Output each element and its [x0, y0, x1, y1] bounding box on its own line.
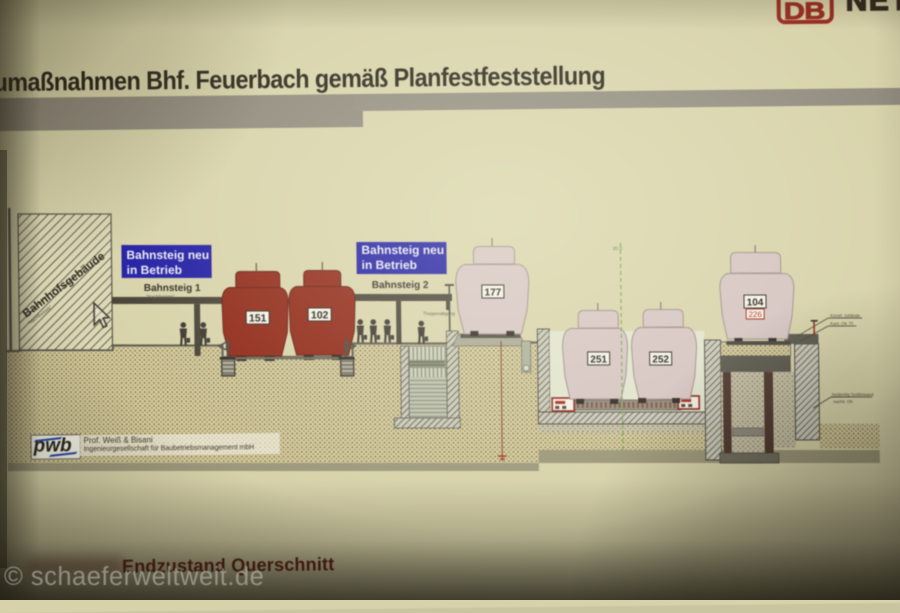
svg-text:177: 177 [485, 288, 502, 299]
svg-text:nachtr. OK: nachtr. OK [833, 399, 853, 404]
svg-text:in Betrieb: in Betrieb [362, 258, 418, 272]
svg-text:Treppenabgang: Treppenabgang [423, 311, 455, 316]
svg-text:151: 151 [249, 313, 267, 325]
svg-text:104: 104 [747, 298, 764, 309]
svg-text:Kant. OK 75: Kant. OK 75 [830, 321, 854, 326]
svg-text:Bahnsteig 1: Bahnsteig 1 [144, 283, 201, 294]
svg-text:102: 102 [311, 310, 329, 322]
svg-text:Bahnsteig 2: Bahnsteig 2 [372, 280, 429, 291]
svg-text:Künstl. Gelände: Künstl. Gelände [830, 313, 861, 318]
svg-text:251: 251 [590, 354, 607, 365]
svg-text:252: 252 [652, 354, 669, 365]
svg-text:Bahnsteig neu: Bahnsteig neu [126, 248, 209, 262]
svg-text:35.0: 35.0 [612, 246, 622, 252]
svg-text:Bahnsteig neu: Bahnsteig neu [361, 243, 444, 257]
svg-text:226: 226 [748, 310, 762, 319]
svg-text:beidseitig Schlitzwand: beidseitig Schlitzwand [832, 392, 874, 397]
svg-text:in Betrieb: in Betrieb [127, 263, 183, 277]
svg-text:"Nachtbetrieb": "Nachtbetrieb" [146, 294, 175, 299]
